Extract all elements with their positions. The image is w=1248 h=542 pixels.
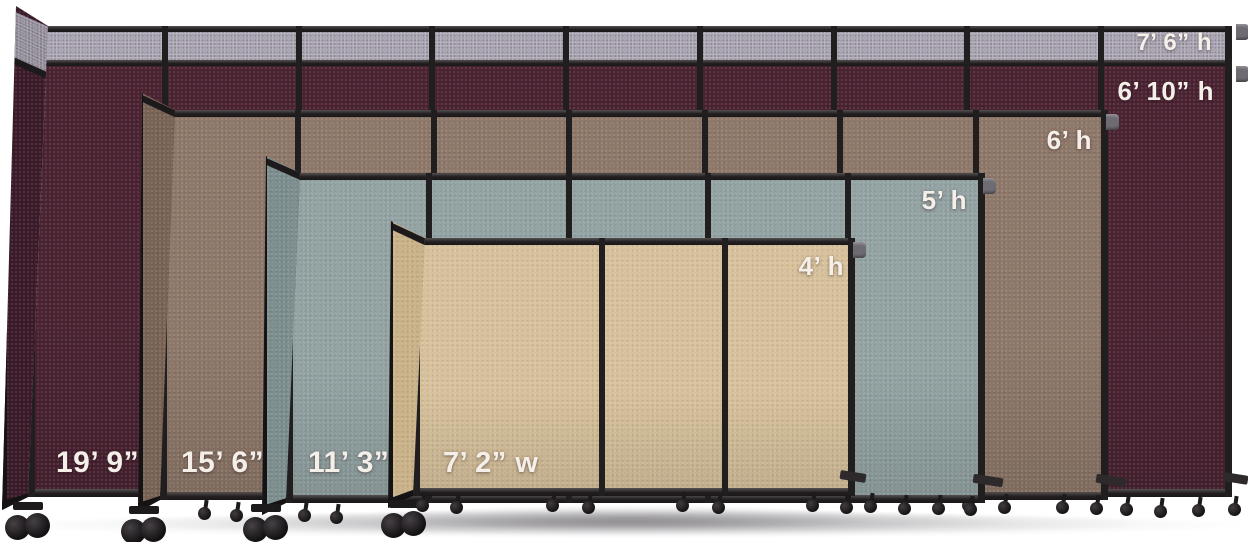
caster-wheel xyxy=(712,501,725,514)
panel-frame-line xyxy=(722,238,728,496)
caster-wheel-small xyxy=(804,492,824,512)
caster-wheel-small xyxy=(710,494,730,514)
hinge-tab xyxy=(853,242,866,258)
caster-wheel xyxy=(416,499,429,512)
caster-wheel xyxy=(401,511,426,536)
front-right-frame xyxy=(848,238,855,496)
panel-frame-line xyxy=(599,238,605,496)
caster-wheel-small xyxy=(580,494,600,514)
caster-wheel-small xyxy=(448,494,468,514)
height-label-4ft: 4’ h xyxy=(744,252,844,281)
room-divider-size-comparison: 7’ 6” h6’ 10” h19’ 9” w6’ h15’ 6” w5’ h1… xyxy=(0,0,1248,542)
front-top-frame xyxy=(413,238,855,245)
caster-wheel-small xyxy=(838,494,858,514)
caster-wheel xyxy=(450,501,463,514)
front-bottom-frame xyxy=(413,488,855,496)
caster-wheel xyxy=(582,501,595,514)
divider-sand: 4’ h7’ 2” w xyxy=(0,0,1248,542)
return-edge-frame xyxy=(388,221,393,508)
width-label-7ft2: 7’ 2” w xyxy=(443,448,538,480)
caster-wheel xyxy=(840,501,853,514)
caster-wheel-small xyxy=(674,492,694,512)
caster-wheel-small xyxy=(414,492,434,512)
caster-wheel xyxy=(806,499,819,512)
caster-wheel-small xyxy=(544,492,564,512)
caster-wheel xyxy=(546,499,559,512)
caster-wheel xyxy=(676,499,689,512)
